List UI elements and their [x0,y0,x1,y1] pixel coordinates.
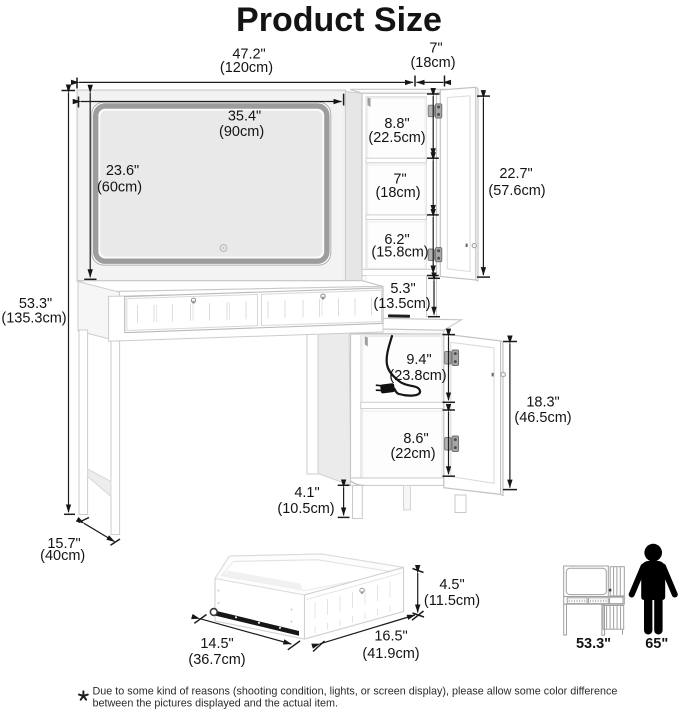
svg-text:(11.5cm): (11.5cm) [424,593,480,609]
svg-text:(90cm): (90cm) [219,124,264,140]
svg-text:(57.6cm): (57.6cm) [488,183,545,199]
svg-text:35.4": 35.4" [228,109,261,125]
svg-text:(23.8cm): (23.8cm) [389,368,446,384]
svg-text:22.7": 22.7" [499,166,532,182]
svg-text:(60cm): (60cm) [97,180,142,196]
svg-text:4.1": 4.1" [294,485,319,501]
svg-text:53.3": 53.3" [576,636,611,652]
svg-text:(41.9cm): (41.9cm) [362,646,419,662]
svg-text:8.6": 8.6" [403,431,428,447]
svg-text:(22cm): (22cm) [390,446,435,462]
svg-text:5.3": 5.3" [390,281,415,297]
svg-text:(15.8cm): (15.8cm) [371,245,428,261]
svg-text:(135.3cm): (135.3cm) [1,311,66,327]
svg-text:4.5": 4.5" [439,577,464,593]
svg-text:between the pictures displayed: between the pictures displayed and the a… [93,698,338,710]
svg-text:Product Size: Product Size [236,1,442,39]
svg-text:(36.7cm): (36.7cm) [188,652,245,668]
svg-text:(46.5cm): (46.5cm) [514,410,571,426]
svg-text:(22.5cm): (22.5cm) [368,130,425,146]
svg-text:(18cm): (18cm) [410,55,455,71]
svg-text:18.3": 18.3" [526,395,559,411]
svg-text:9.4": 9.4" [406,352,431,368]
svg-text:(120cm): (120cm) [220,60,273,76]
svg-text:23.6": 23.6" [106,163,139,179]
svg-text:Due to some kind of reasons (s: Due to some kind of reasons (shooting co… [93,685,618,697]
svg-text:65": 65" [645,636,668,652]
svg-text:(40cm): (40cm) [40,548,85,564]
svg-text:(13.5cm): (13.5cm) [373,296,430,312]
svg-text:(10.5cm): (10.5cm) [277,501,334,517]
svg-text:(18cm): (18cm) [375,185,420,201]
svg-text:16.5": 16.5" [374,629,407,645]
svg-text:14.5": 14.5" [200,636,233,652]
